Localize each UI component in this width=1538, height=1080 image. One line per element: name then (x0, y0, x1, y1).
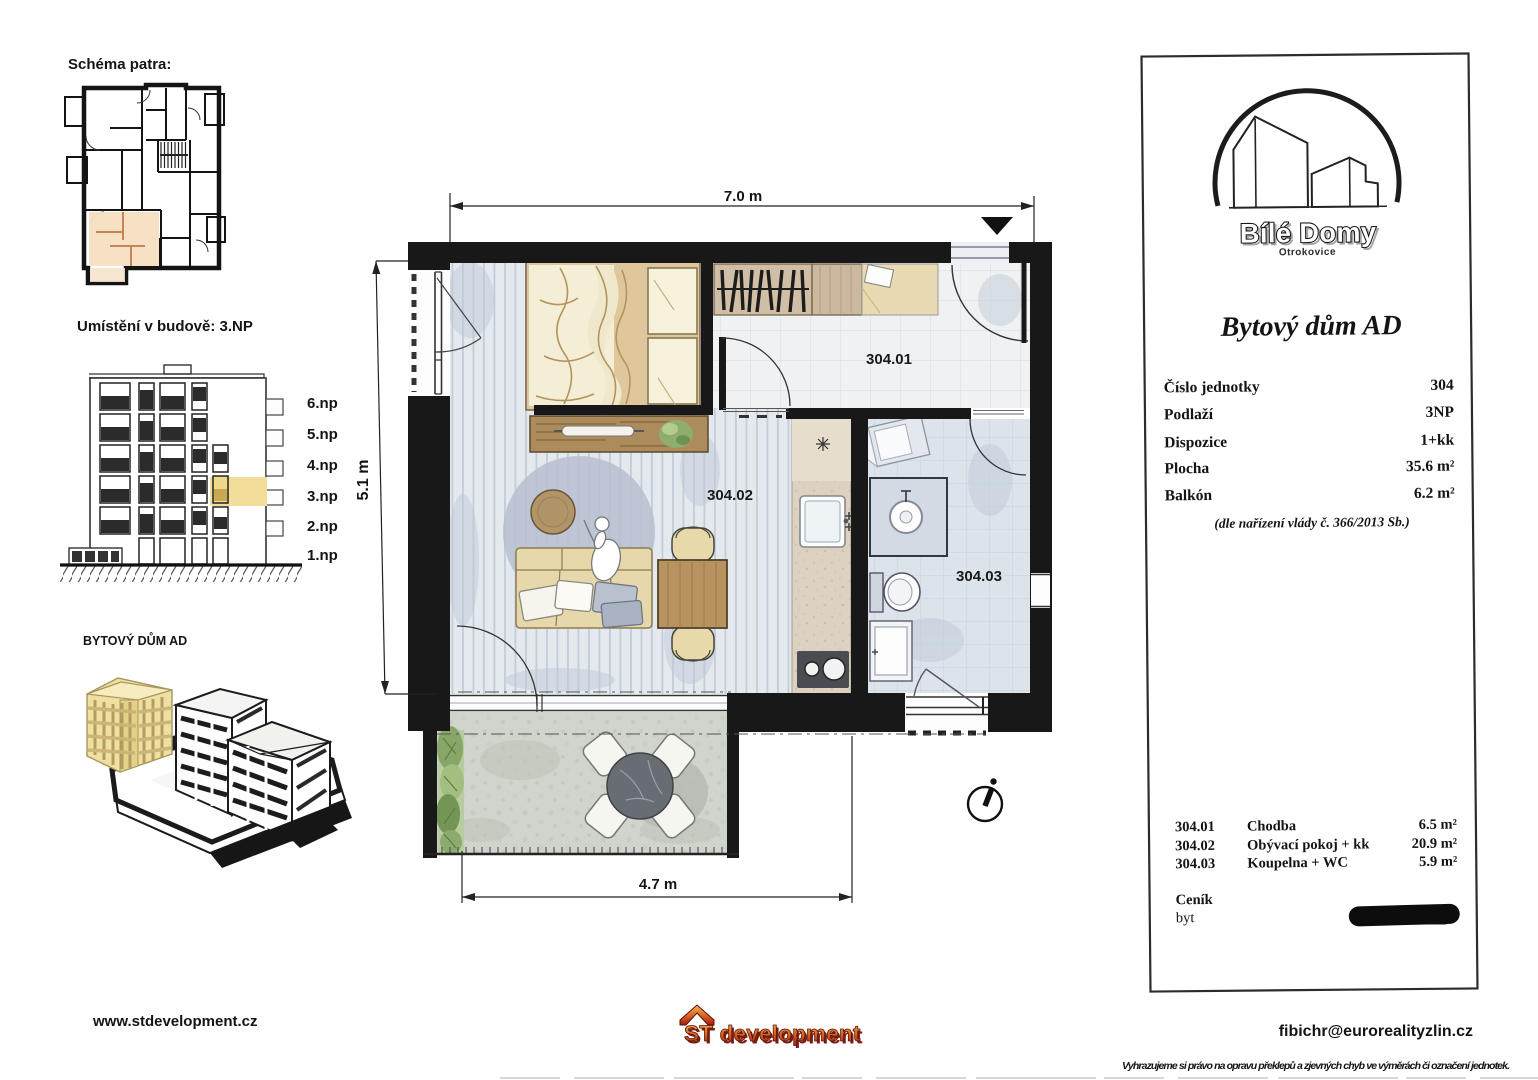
svg-text:fibichr@eurorealityzlin.cz: fibichr@eurorealityzlin.cz (1279, 1023, 1473, 1040)
svg-text:BYTOVÝ DŮM AD: BYTOVÝ DŮM AD (83, 632, 187, 648)
svg-text:304.02: 304.02 (707, 487, 753, 504)
svg-text:Číslo jednotky: Číslo jednotky (1164, 378, 1260, 396)
svg-text:Koupelna + WC: Koupelna + WC (1247, 855, 1348, 872)
svg-text:1+kk: 1+kk (1420, 432, 1454, 449)
svg-text:3.np: 3.np (307, 488, 338, 505)
svg-text:Umístění v budově: 3.NP: Umístění v budově: 3.NP (77, 318, 253, 335)
svg-text:Vyhrazujeme si právo na opravu: Vyhrazujeme si právo na opravu překlepů … (1122, 1060, 1510, 1072)
svg-text:Schéma patra:: Schéma patra: (68, 56, 171, 73)
svg-text:304.01: 304.01 (1175, 819, 1215, 835)
svg-text:1.np: 1.np (307, 547, 338, 564)
svg-text:5.9 m²: 5.9 m² (1419, 854, 1457, 870)
svg-text:6.2 m²: 6.2 m² (1414, 485, 1455, 502)
svg-text:www.stdevelopment.cz: www.stdevelopment.cz (92, 1013, 257, 1030)
svg-text:4.np: 4.np (307, 457, 338, 474)
svg-text:Otrokovice: Otrokovice (1279, 247, 1336, 259)
svg-text:Obývací pokoj + kk: Obývací pokoj + kk (1247, 836, 1370, 853)
svg-text:6.5 m²: 6.5 m² (1419, 817, 1457, 833)
svg-text:20.9 m²: 20.9 m² (1412, 836, 1458, 852)
svg-text:(dle nařízení vlády č. 366/201: (dle nařízení vlády č. 366/2013 Sb.) (1214, 514, 1410, 531)
svg-text:304.03: 304.03 (1175, 856, 1215, 872)
svg-text:4.7 m: 4.7 m (639, 876, 677, 893)
svg-text:5.np: 5.np (307, 426, 338, 443)
svg-text:Bytový dům AD: Bytový dům AD (1220, 310, 1402, 343)
svg-text:35.6 m²: 35.6 m² (1406, 458, 1455, 475)
svg-text:304.03: 304.03 (956, 568, 1002, 585)
svg-text:Ceník: Ceník (1176, 892, 1214, 908)
svg-text:304: 304 (1430, 377, 1454, 394)
svg-text:Chodba: Chodba (1247, 818, 1297, 834)
svg-text:Bílé Domy: Bílé Domy (1240, 217, 1377, 248)
svg-text:Dispozice: Dispozice (1164, 434, 1227, 452)
svg-text:304.01: 304.01 (866, 351, 912, 368)
svg-text:Balkón: Balkón (1165, 487, 1213, 504)
svg-text:2.np: 2.np (307, 518, 338, 535)
svg-text:Plocha: Plocha (1164, 460, 1209, 477)
svg-text:Podlaží: Podlaží (1164, 406, 1214, 423)
svg-text:byt: byt (1176, 910, 1195, 926)
svg-text:6.np: 6.np (307, 395, 338, 412)
svg-text:3NP: 3NP (1425, 404, 1454, 421)
svg-text:7.0 m: 7.0 m (724, 188, 762, 205)
svg-text:304.02: 304.02 (1175, 838, 1215, 854)
svg-text:5.1 m: 5.1 m (355, 460, 372, 501)
